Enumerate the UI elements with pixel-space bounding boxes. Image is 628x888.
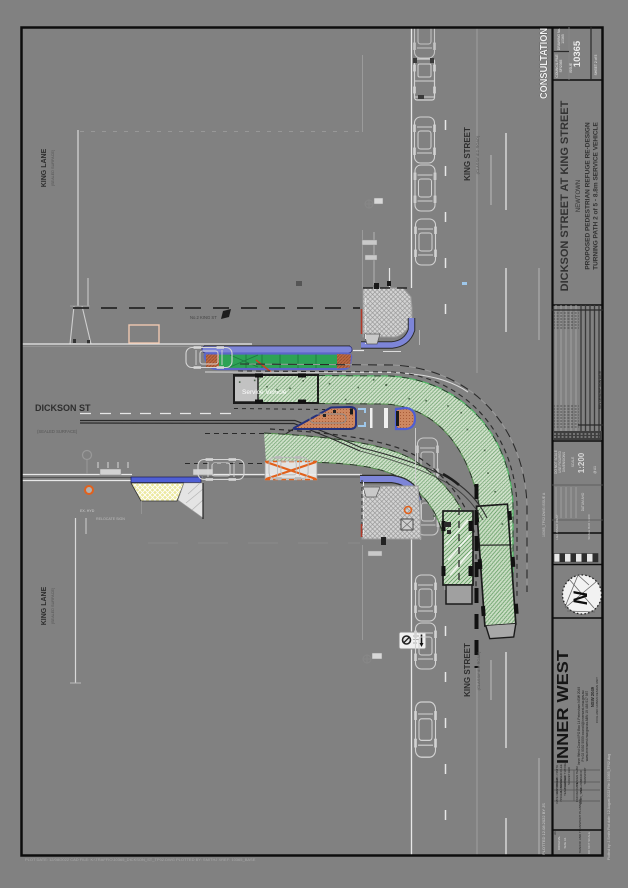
svg-text:DIMENSIONS: DIMENSIONS	[562, 452, 566, 472]
svg-text:A1: A1	[553, 831, 557, 835]
svg-text:ISSUE A: ISSUE A	[559, 790, 563, 801]
svg-text:TURNING PATH 2 of 5 - 8.8m SER: TURNING PATH 2 of 5 - 8.8m SERVICE VEHIC…	[593, 121, 600, 269]
svg-text:(SEALED SURFACE): (SEALED SURFACE)	[51, 587, 55, 624]
svg-text:SCALE: SCALE	[571, 457, 575, 467]
svg-text:(CLASSIFIED ROAD): (CLASSIFIED ROAD)	[475, 135, 480, 174]
svg-text:Plotted by: J.Smith Plot dat: Plotted by: J.Smith Plot date: 12 August…	[607, 754, 611, 860]
svg-text:www.innerwest.nsw.gov.au ABN: www.innerwest.nsw.gov.au ABN 19 488 017 …	[585, 691, 589, 762]
svg-text:SCALE BAR 1:200: SCALE BAR 1:200	[587, 514, 591, 540]
svg-text:TEAM LEADER: TEAM LEADER	[563, 776, 567, 796]
svg-text:Service Vehicle: Service Vehicle	[242, 389, 287, 396]
svg-text:CONSULTATION: CONSULTATION	[539, 28, 550, 99]
svg-text:PROPOSED PEDESTRIAN REFUGE RE-: PROPOSED PEDESTRIAN REFUGE RE-DESIGN	[585, 122, 592, 270]
svg-text:KING LANE: KING LANE	[41, 586, 48, 625]
svg-text:RELOCATE SIGN: RELOCATE SIGN	[96, 517, 125, 521]
svg-text:NEWTOWN: NEWTOWN	[576, 180, 582, 212]
svg-text:No.2 KING ST: No.2 KING ST	[190, 315, 217, 320]
svg-text:DO NOT SCALE: DO NOT SCALE	[587, 832, 591, 854]
svg-text:10365: 10365	[572, 40, 583, 67]
svg-text:PLOTTED 12.08.2022 BY JS: PLOTTED 12.08.2022 BY JS	[541, 803, 546, 855]
svg-text:10365: 10365	[561, 34, 565, 44]
svg-text:ISSUE: ISSUE	[569, 62, 573, 73]
svg-text:PLOT DATE: 12/08/2022 CAD FIL: PLOT DATE: 12/08/2022 CAD FILE: K:\TRAFF…	[25, 857, 256, 862]
svg-text:10365_TP02.DWG ISSUE A: 10365_TP02.DWG ISSUE A	[542, 492, 546, 537]
svg-text:SIZE A1: SIZE A1	[563, 837, 567, 848]
svg-text:(SEALED SURFACE): (SEALED SURFACE)	[37, 429, 78, 434]
svg-text:DICKSON ST: DICKSON ST	[35, 403, 91, 413]
svg-text:INNER WEST: INNER WEST	[555, 650, 572, 764]
svg-text:ORIGINAL: ORIGINAL	[557, 836, 561, 851]
svg-text:TRANSPORT: TRANSPORT	[583, 767, 587, 784]
svg-text:SHEET 2 of 5: SHEET 2 of 5	[594, 55, 598, 76]
svg-text:EX. HYD: EX. HYD	[80, 509, 95, 513]
svg-text:TRAFFIC AND TRANSPORT PLANNING: TRAFFIC AND TRANSPORT PLANNING	[578, 798, 582, 854]
svg-text:KING LANE: KING LANE	[41, 148, 48, 187]
svg-text:(SEALED SURFACE): (SEALED SURFACE)	[51, 149, 55, 186]
svg-text:SURVEY AHD: SURVEY AHD	[567, 767, 571, 785]
svg-text:CIVIL AND URBAN DESIGN UNIT: CIVIL AND URBAN DESIGN UNIT	[595, 677, 599, 723]
svg-text:LGA INNER WEST: LGA INNER WEST	[555, 514, 559, 540]
svg-text:(CLASSIFIED ROAD): (CLASSIFIED ROAD)	[476, 651, 481, 690]
svg-text:KING STREET: KING STREET	[463, 127, 472, 181]
svg-text:1:200: 1:200	[577, 452, 586, 473]
svg-text:DATUM AHD: DATUM AHD	[581, 492, 585, 511]
svg-text:SF/2365: SF/2365	[559, 59, 563, 72]
svg-text:@ A1: @ A1	[593, 466, 597, 474]
svg-text:N: N	[571, 590, 592, 605]
svg-text:DICKSON STREET AT KING STREET: DICKSON STREET AT KING STREET	[559, 100, 571, 291]
svg-text:REV DESCRIPTION DATE: REV DESCRIPTION DATE	[598, 371, 602, 409]
svg-text:KING STREET: KING STREET	[463, 643, 472, 697]
